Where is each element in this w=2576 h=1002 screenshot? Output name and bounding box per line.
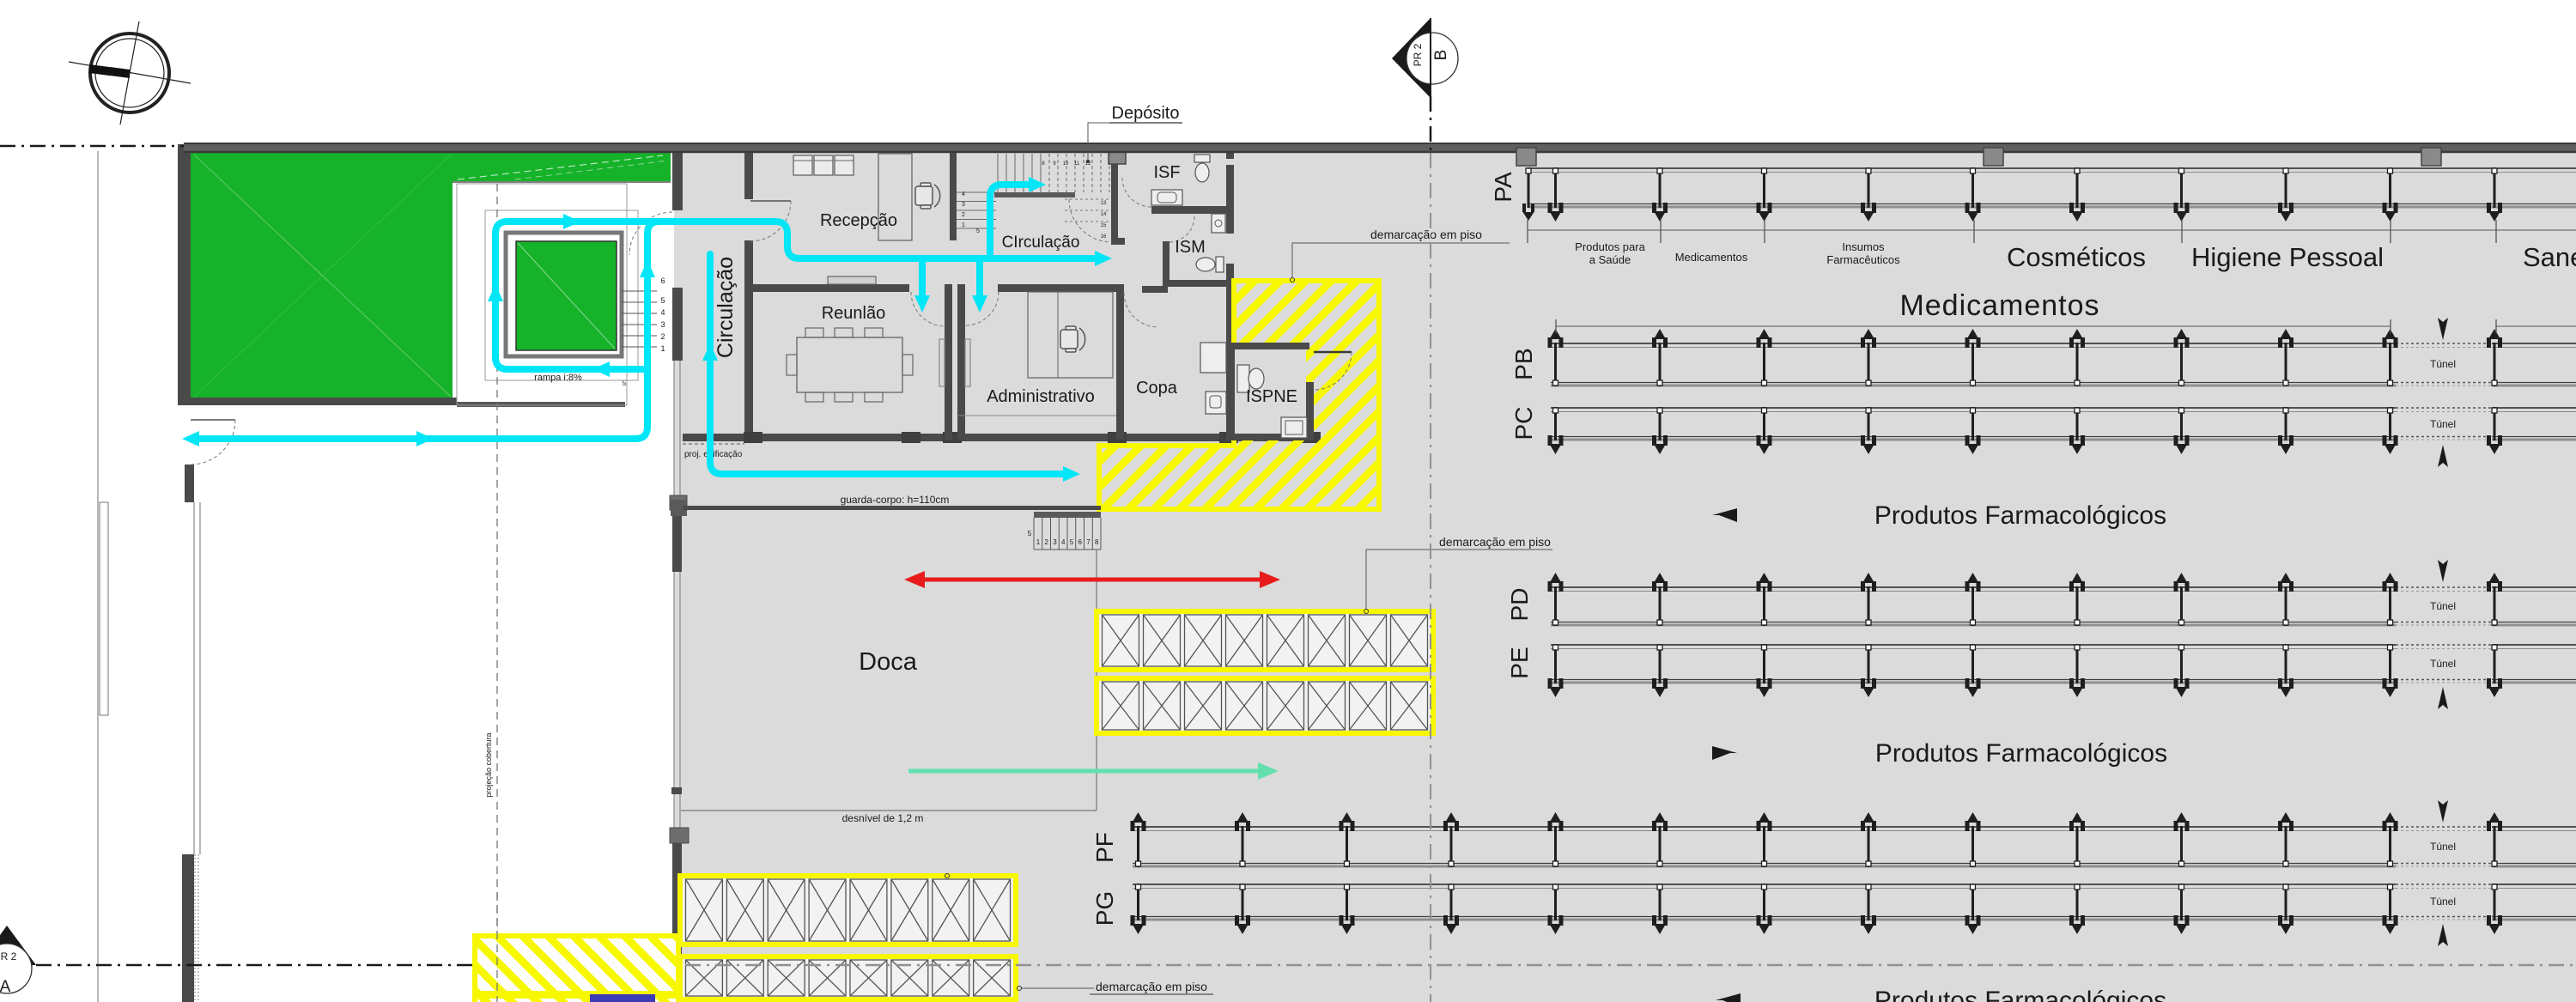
svg-text:7: 7 <box>1086 538 1091 546</box>
svg-text:Túnel: Túnel <box>2430 600 2456 612</box>
svg-text:Medicamentos: Medicamentos <box>1899 289 2099 322</box>
svg-text:8: 8 <box>1095 538 1099 546</box>
svg-text:B: B <box>1432 50 1450 61</box>
svg-text:2: 2 <box>962 212 965 218</box>
svg-text:R 2: R 2 <box>1 950 17 963</box>
svg-text:CIrculação: CIrculação <box>1002 234 1080 252</box>
svg-text:PG: PG <box>1091 891 1118 926</box>
svg-text:A: A <box>0 978 11 996</box>
svg-text:Insumos: Insumos <box>1842 240 1885 253</box>
svg-text:Depósito: Depósito <box>1112 104 1180 123</box>
svg-text:Túnel: Túnel <box>2430 418 2456 430</box>
svg-text:1: 1 <box>962 222 965 228</box>
svg-text:a Saúde: a Saúde <box>1589 253 1631 266</box>
svg-text:2: 2 <box>660 332 665 341</box>
svg-text:3: 3 <box>962 202 965 208</box>
svg-text:Cosméticos: Cosméticos <box>2007 242 2146 272</box>
svg-text:Produtos Farmacológicos: Produtos Farmacológicos <box>1874 501 2166 530</box>
svg-text:Higiene Pessoal: Higiene Pessoal <box>2191 242 2384 272</box>
svg-text:Túnel: Túnel <box>2430 358 2456 370</box>
svg-text:PE: PE <box>1506 647 1533 678</box>
svg-text:Produtos Farmacológicos: Produtos Farmacológicos <box>1875 739 2167 768</box>
svg-text:Recepção: Recepção <box>820 211 897 230</box>
svg-text:Produtos para: Produtos para <box>1575 240 1645 253</box>
svg-text:ISF: ISF <box>1153 163 1180 182</box>
svg-text:5: 5 <box>660 296 665 305</box>
svg-text:4: 4 <box>962 191 965 197</box>
svg-text:PD: PD <box>1506 588 1533 622</box>
svg-text:Medicamentos: Medicamentos <box>1675 251 1748 264</box>
svg-text:demarcação em piso: demarcação em piso <box>1096 980 1207 993</box>
svg-text:demarcação em piso: demarcação em piso <box>1370 228 1482 241</box>
svg-text:15: 15 <box>1101 223 1107 228</box>
svg-text:2: 2 <box>1045 538 1049 546</box>
svg-text:Circulação: Circulação <box>714 257 738 358</box>
svg-text:1: 1 <box>1036 538 1041 546</box>
svg-text:Túnel: Túnel <box>2430 658 2456 670</box>
svg-text:4: 4 <box>1061 538 1066 546</box>
svg-text:1: 1 <box>660 344 665 353</box>
svg-text:5: 5 <box>976 228 980 234</box>
svg-text:PF: PF <box>1091 832 1118 863</box>
svg-text:Reunlão: Reunlão <box>822 304 886 323</box>
svg-text:projeção cobertura: projeção cobertura <box>484 732 493 797</box>
svg-text:ISPNE: ISPNE <box>1246 387 1297 406</box>
svg-text:Copa: Copa <box>1136 379 1178 398</box>
svg-text:PC: PC <box>1510 407 1537 440</box>
svg-text:3: 3 <box>660 320 665 329</box>
svg-text:16: 16 <box>1101 234 1107 240</box>
svg-text:Túnel: Túnel <box>2430 896 2456 908</box>
svg-text:rampa i:8%: rampa i:8% <box>534 373 582 383</box>
svg-text:3: 3 <box>1053 538 1057 546</box>
svg-text:guarda-corpo: h=110cm: guarda-corpo: h=110cm <box>841 494 950 506</box>
svg-text:demarcação em piso: demarcação em piso <box>1439 535 1551 549</box>
svg-text:desnível de 1,2 m: desnível de 1,2 m <box>842 812 924 824</box>
svg-text:6: 6 <box>660 276 665 285</box>
svg-text:PR 2: PR 2 <box>1412 43 1424 66</box>
svg-text:Doca: Doca <box>859 648 918 676</box>
svg-text:Túnel: Túnel <box>2430 841 2456 853</box>
svg-text:11: 11 <box>1074 161 1080 167</box>
svg-text:5: 5 <box>1028 530 1032 537</box>
svg-text:5: 5 <box>1070 538 1074 546</box>
svg-text:14: 14 <box>1101 212 1107 217</box>
svg-text:Administrativo: Administrativo <box>987 387 1095 406</box>
svg-text:ISM: ISM <box>1175 238 1206 257</box>
svg-text:PB: PB <box>1510 348 1537 380</box>
svg-text:Sane: Sane <box>2523 242 2576 272</box>
svg-text:PA: PA <box>1490 172 1516 203</box>
svg-text:4: 4 <box>660 308 665 317</box>
svg-text:6: 6 <box>1078 538 1083 546</box>
svg-text:13: 13 <box>1101 201 1107 206</box>
svg-text:Produtos Farmacológicos: Produtos Farmacológicos <box>1874 987 2166 1002</box>
svg-text:Farmacêuticos: Farmacêuticos <box>1826 253 1900 266</box>
svg-text:10: 10 <box>1063 161 1069 167</box>
